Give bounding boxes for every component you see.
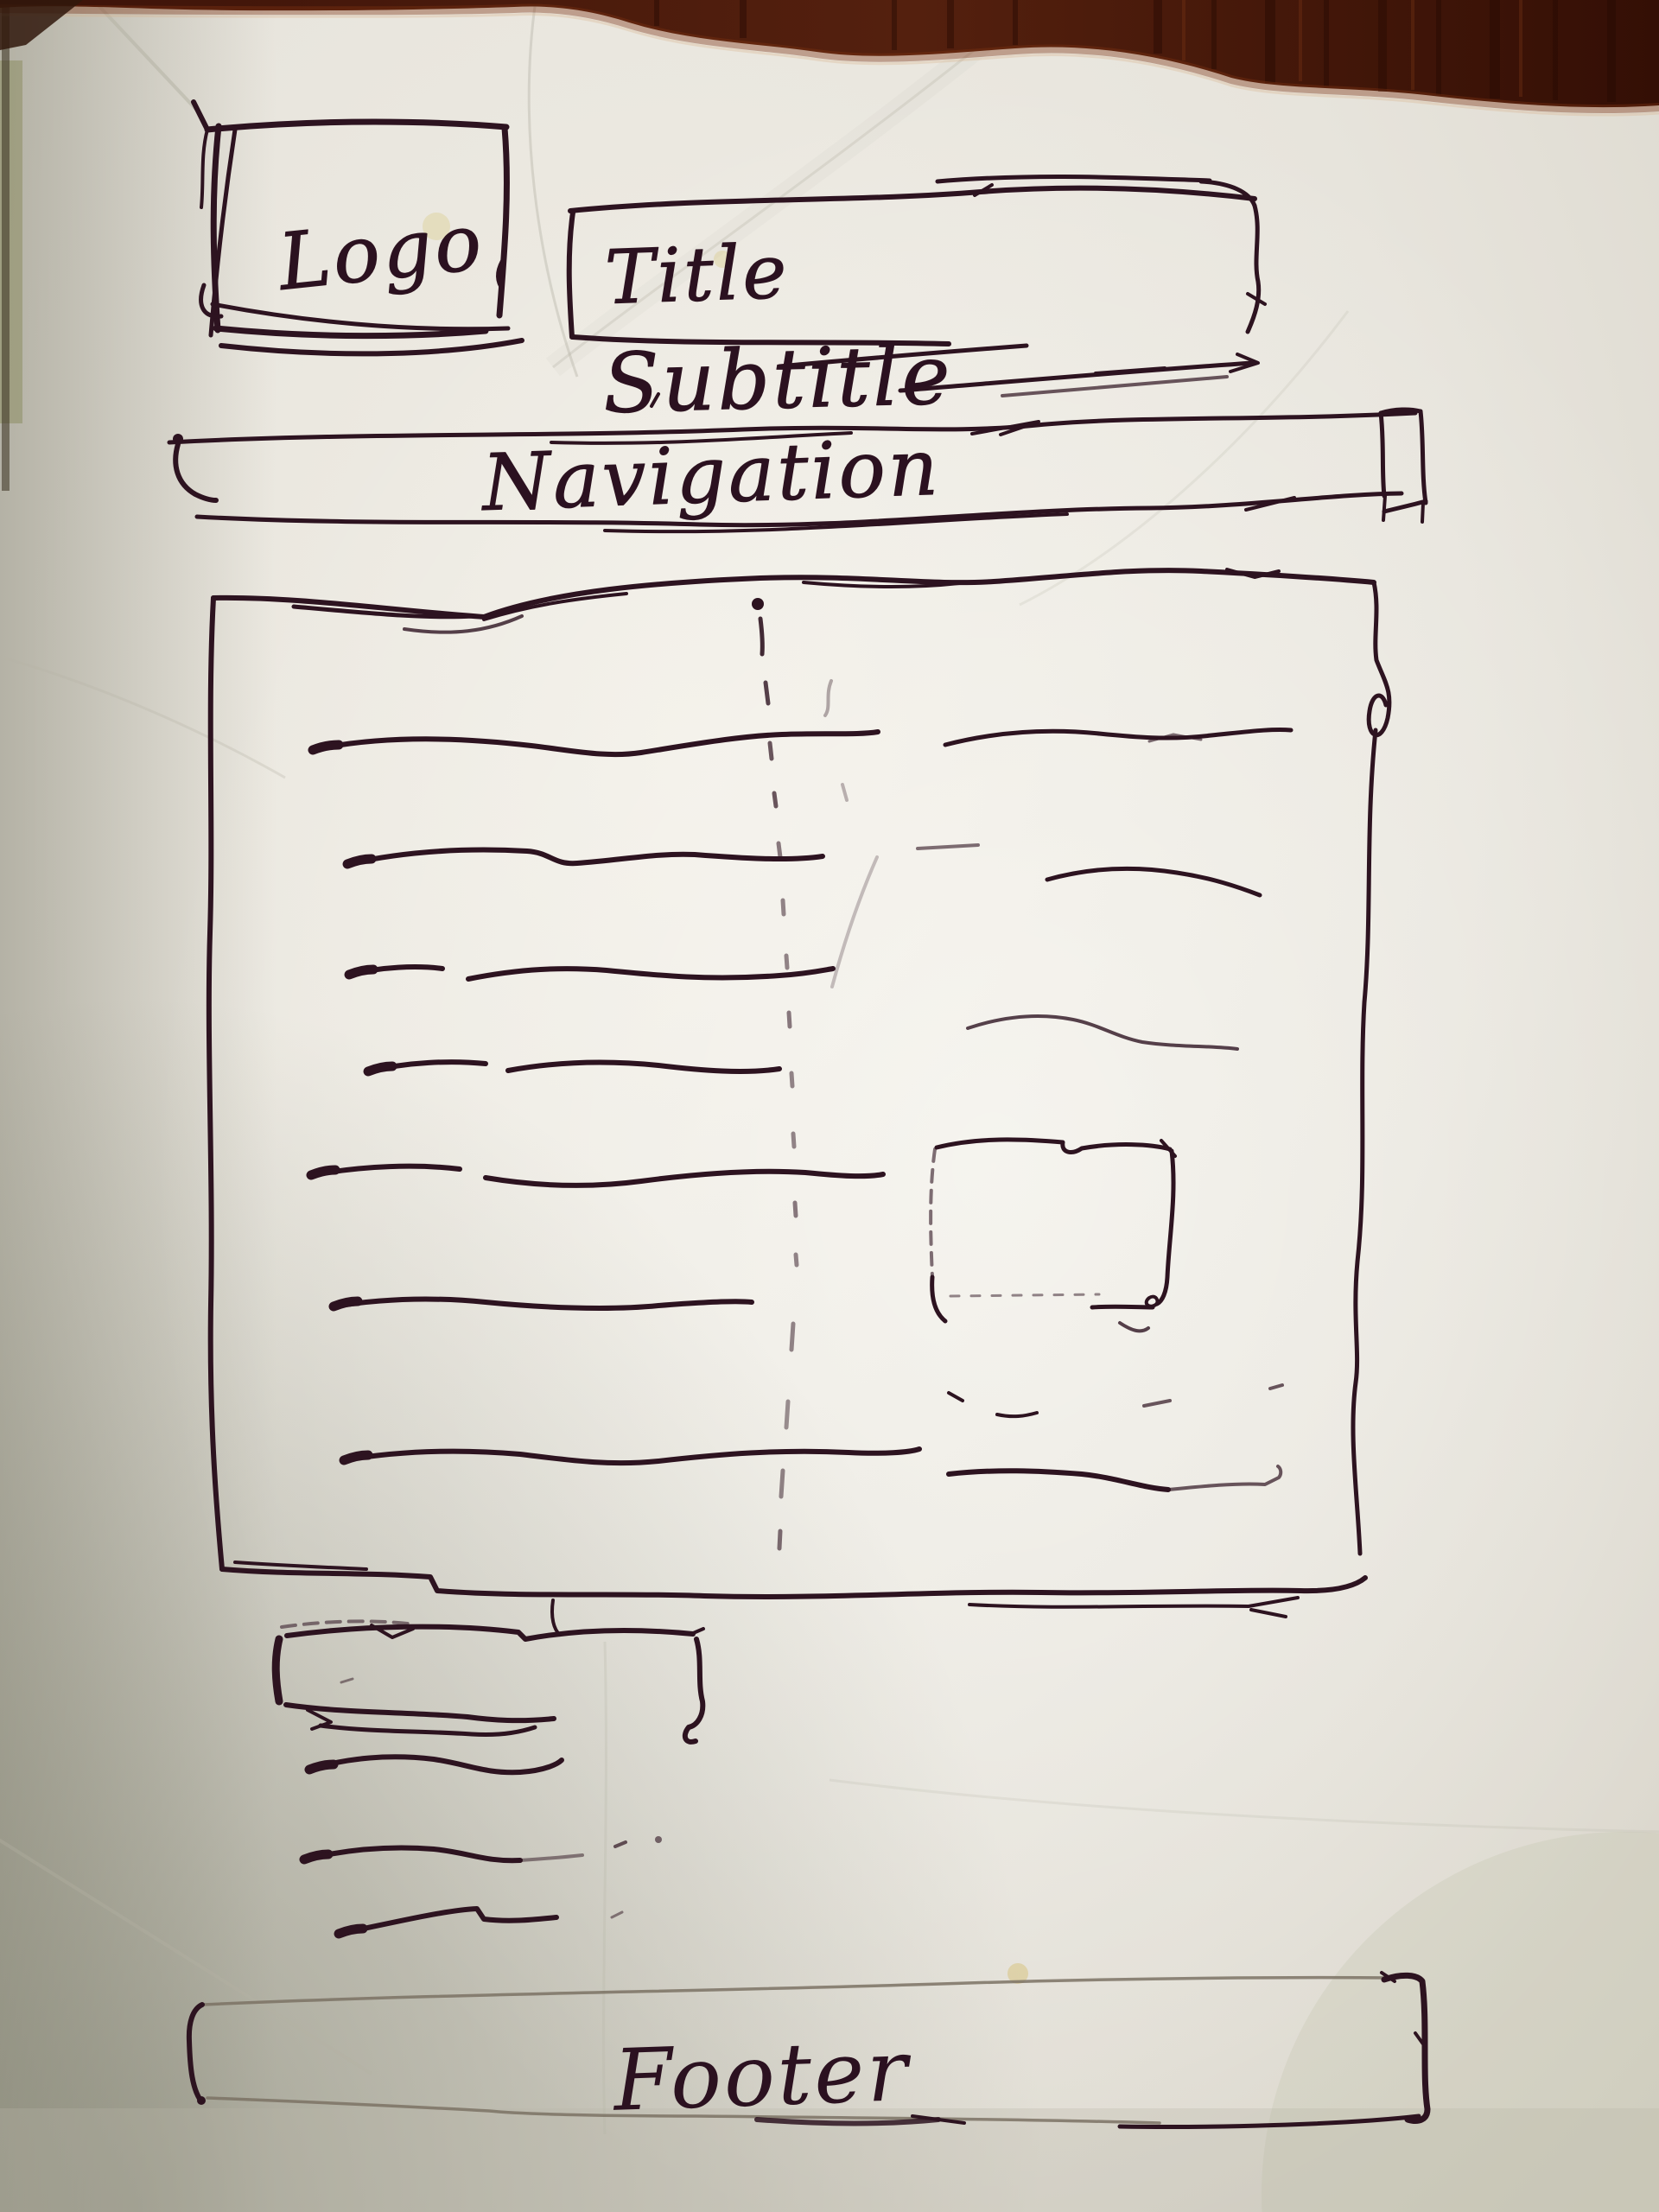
image-box-outline (1092, 1306, 1153, 1307)
footer-bar-end-cap (197, 2096, 206, 2105)
photo-of-wireframe-sketch: Logo Title Subtitle Na (0, 0, 1659, 2212)
button-outline (276, 1639, 279, 1701)
text-line-sketch (655, 1836, 662, 1843)
navigation-bar-end-cap (1381, 413, 1384, 496)
title-label: Title (604, 229, 791, 321)
paper-edge-dark-line (2, 7, 10, 491)
navigation-bar-end-cap (1383, 496, 1385, 520)
footer-label: Footer (610, 2022, 913, 2131)
navigation-label: Navigation (480, 423, 943, 530)
sketch-canvas: Logo Title Subtitle Na (0, 0, 1659, 2212)
navigation-bar-end-cap (1422, 503, 1423, 522)
subtitle-label: Subtitle (602, 327, 954, 432)
